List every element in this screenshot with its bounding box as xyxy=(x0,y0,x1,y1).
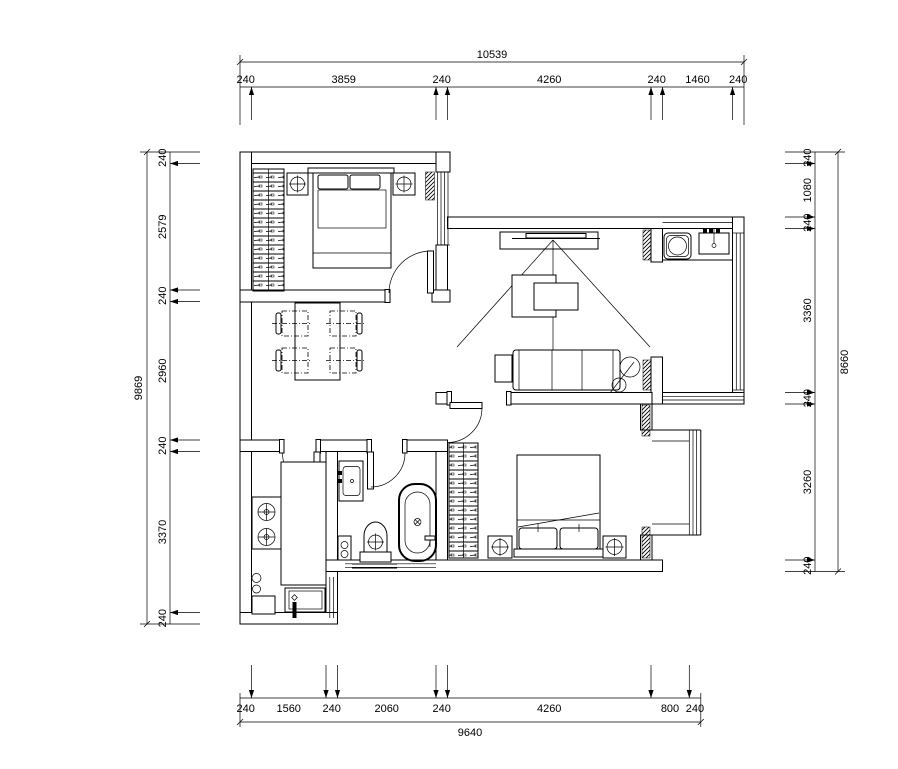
wall-east-window xyxy=(733,217,745,404)
wall-post xyxy=(436,152,450,172)
living-furniture xyxy=(457,232,650,393)
dimension-chain-top: 10539 240 3859 240 4260 240 1460 240 xyxy=(237,49,748,125)
nightstand xyxy=(603,536,626,558)
wall-living-kitchen-divider xyxy=(651,229,663,263)
bathtub xyxy=(399,484,436,561)
dimension-label: 240 xyxy=(323,703,341,715)
dimension-label: 240 xyxy=(433,74,451,86)
wall-north-bedroom1 xyxy=(240,152,450,164)
dimension-chain-right: 240 1080 240 3360 240 3260 240 8660 xyxy=(785,149,851,575)
wall-north-bedroom2 xyxy=(507,393,652,405)
kitchen2-furniture xyxy=(252,462,326,618)
wardrobe xyxy=(449,443,478,558)
cabinet xyxy=(338,536,351,560)
bottle xyxy=(252,574,261,583)
wall-hall-2 xyxy=(318,440,370,452)
dimension-label: 240 xyxy=(686,703,704,715)
dimension-label: 240 xyxy=(157,609,169,627)
coffee-table xyxy=(512,275,578,317)
curtain-hatch xyxy=(426,172,435,200)
nightstand xyxy=(488,536,512,558)
dimension-label: 10539 xyxy=(477,49,508,61)
gas-cooktop xyxy=(252,497,281,549)
wall-west xyxy=(240,152,252,624)
dimension-label: 240 xyxy=(157,437,169,455)
curtain-hatch xyxy=(642,527,650,558)
double-bed xyxy=(514,455,603,557)
kitchen-counter xyxy=(281,462,326,585)
dimension-label: 9869 xyxy=(133,376,145,400)
tub-faucet xyxy=(425,536,435,540)
curtain-hatch xyxy=(643,230,651,260)
dining-furniture xyxy=(272,303,366,380)
dimension-chain-bottom: 240 1560 240 2060 240 4260 800 240 9640 xyxy=(237,665,705,739)
kitchen1-furniture xyxy=(663,229,733,261)
dimension-label: 3260 xyxy=(802,470,814,494)
floor-plan-canvas: 10539 240 3859 240 4260 240 1460 240 240… xyxy=(0,0,898,769)
dimension-label: 4260 xyxy=(537,74,561,86)
dimension-label: 2579 xyxy=(157,214,169,238)
dimension-label: 1080 xyxy=(802,178,814,202)
dimension-label: 240 xyxy=(433,703,451,715)
dimension-label: 8660 xyxy=(839,350,851,374)
wall-hall-3 xyxy=(405,440,448,452)
door-bathroom xyxy=(367,440,407,490)
dimension-label: 240 xyxy=(802,149,814,167)
kitchen-sink xyxy=(664,233,691,259)
washbasin xyxy=(337,461,363,501)
dimension-label: 3360 xyxy=(802,298,814,322)
bay-window-bedroom2 xyxy=(652,430,701,535)
dimension-label: 240 xyxy=(802,557,814,575)
dimension-label: 2060 xyxy=(374,703,398,715)
side-table xyxy=(495,355,512,382)
wardrobe xyxy=(253,169,284,291)
wall-bath-bedroom2-divider xyxy=(436,440,448,560)
dimension-label: 4260 xyxy=(537,703,561,715)
bottle xyxy=(253,585,261,593)
curtain-hatch xyxy=(643,360,651,390)
bedroom2-furniture xyxy=(449,443,626,558)
double-bed xyxy=(308,168,394,268)
floor-plan-page: 10539 240 3859 240 4260 240 1460 240 240… xyxy=(0,0,898,769)
door-bedroom2 xyxy=(447,392,511,443)
wall-living-balcony-divider xyxy=(651,357,663,404)
dimension-label: 1460 xyxy=(685,74,709,86)
wall-post xyxy=(432,290,450,302)
dimension-label: 240 xyxy=(802,214,814,232)
cabinet xyxy=(252,596,275,614)
dimension-label: 800 xyxy=(661,703,679,715)
dimension-label: 240 xyxy=(802,389,814,407)
wall-kitchen-bath-divider xyxy=(326,452,338,561)
dimension-label: 9640 xyxy=(458,727,482,739)
dimension-label: 240 xyxy=(157,287,169,305)
dimension-chain-left: 9869 240 2579 240 2960 240 3370 240 xyxy=(133,149,200,628)
nightstand xyxy=(393,173,415,195)
bathroom-furniture xyxy=(337,461,436,568)
dimension-label: 2960 xyxy=(157,358,169,382)
dimension-label: 240 xyxy=(157,149,169,167)
wall-balcony-sill xyxy=(663,393,745,405)
nightstand xyxy=(287,173,308,195)
window-bedroom1-east xyxy=(426,172,451,245)
curtain-hatch xyxy=(642,405,650,436)
cooktop xyxy=(699,229,729,255)
dimension-label: 3370 xyxy=(157,520,169,544)
dimension-label: 240 xyxy=(237,74,255,86)
dimension-label: 3859 xyxy=(331,74,355,86)
dimension-label: 240 xyxy=(729,74,747,86)
dimension-label: 240 xyxy=(648,74,666,86)
dimension-label: 240 xyxy=(237,703,255,715)
door-bedroom1 xyxy=(385,251,434,303)
sofa xyxy=(513,350,620,390)
bedroom1-furniture xyxy=(253,168,415,291)
dining-table xyxy=(295,303,340,380)
wall-hall-1 xyxy=(240,440,283,452)
dimension-label: 1560 xyxy=(276,703,300,715)
wall-south-bedroom1 xyxy=(240,290,390,302)
